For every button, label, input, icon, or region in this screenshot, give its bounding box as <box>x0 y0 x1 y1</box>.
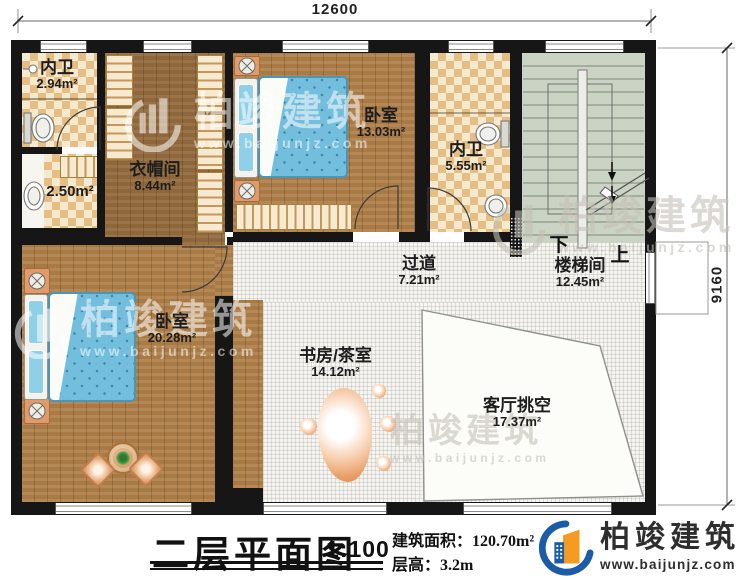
plan-linework <box>0 0 750 580</box>
build-area-row: 建筑面积：120.70m² <box>392 527 534 551</box>
floor-height-row: 层高：3.2m <box>392 551 473 575</box>
stair-up-label: 上 <box>606 240 634 267</box>
floor-height-value: 3.2m <box>440 557 473 574</box>
company-logo-text: 柏竣建筑 www.baijunjz.com <box>600 523 740 572</box>
company-url: www.baijunjz.com <box>600 557 740 572</box>
floor-plan-canvas: 柏竣建筑 www.baijunjz.com 柏竣建筑 www.baijunjz.… <box>0 0 750 580</box>
company-logo-icon <box>536 519 594 577</box>
dimension-top: 12600 <box>303 1 367 18</box>
plan-scale: 1:100 <box>326 536 390 563</box>
build-area-value: 120.70m² <box>472 533 534 550</box>
floor-height-label: 层高： <box>392 557 440 574</box>
build-area-label: 建筑面积： <box>392 533 472 550</box>
dimension-right: 9160 <box>709 260 726 310</box>
stair-down-label: 下 <box>545 230 573 257</box>
company-name: 柏竣建筑 <box>600 523 740 553</box>
